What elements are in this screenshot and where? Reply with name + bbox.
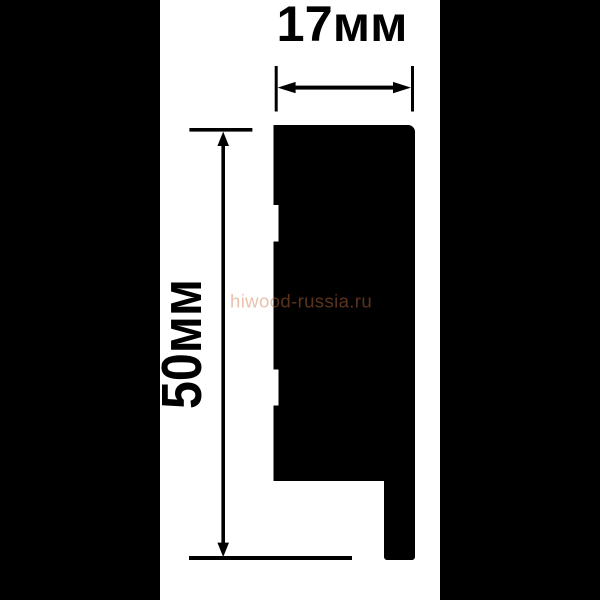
svg-text:hiwood-russia.ru: hiwood-russia.ru — [230, 290, 372, 311]
svg-text:17мм: 17мм — [277, 0, 408, 52]
svg-text:50мм: 50мм — [151, 279, 213, 409]
